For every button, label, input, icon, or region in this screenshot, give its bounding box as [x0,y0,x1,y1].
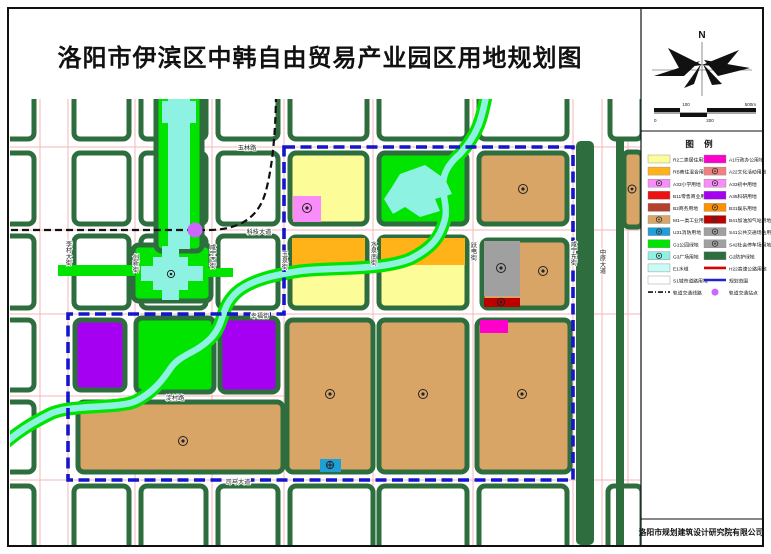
publisher-name: 洛阳市规划建筑设计研究院有限公司 [639,527,764,537]
legend-item: B2商务用地 [648,203,698,212]
legend-symbol-dot [714,170,716,172]
legend-label: A33初中用地 [729,181,757,188]
block-A35-research [75,320,125,390]
legend-item: 规划范围 [704,278,748,285]
legend-label: RB商住混合用地 [673,169,709,176]
legend-item: S41公共交通场站用地 [704,228,771,237]
planning-map-page: 洛阳市伊滨区中韩自由贸易产业园区用地规划图 [0,0,771,554]
legend-symbol-dot [714,231,716,233]
road-label: 咸宁西街 [209,243,216,270]
legend-symbol-dot [714,207,716,209]
legend-swatch [648,155,670,163]
block-M1-industrial [379,320,467,472]
legend-label: U31消防用地 [673,229,701,236]
road-label: 跃电街 [470,241,477,261]
legend-label: S1城市道路用地 [673,278,708,285]
legend-symbol-dot [658,231,660,233]
legend-label: G3广场用地 [673,253,699,260]
legend-item: A33小学用地 [648,179,701,188]
legend-symbol-dot [714,182,716,184]
north-label: N [698,30,705,41]
scale-bar: 0 100 200 500m [654,102,756,123]
road-label: 玉泉街 [281,251,288,271]
legend-label: A35科研用地 [729,193,757,200]
legend-swatch [648,264,670,272]
legend-label: H22高速公路用地 [729,266,767,273]
legend-swatch [704,191,726,199]
legend-item: A1行政办公用地 [704,155,764,164]
legend-title: 图 例 [685,139,716,149]
legend-item: A35科研用地 [704,191,757,200]
legend-dot-swatch [712,289,719,296]
road-label: 司马大道 [226,478,251,486]
block-M1-industrial [477,320,570,472]
legend-symbol-dot [658,255,660,257]
road-label: 中原大道 [599,248,606,275]
legend-label: M1一类工业用地 [673,217,709,224]
scale-200: 200 [706,118,714,123]
road-label: 水泉南街 [370,240,377,267]
legend-swatch [704,155,726,163]
legend-label: S42社会停车场用地 [729,241,771,248]
legend-label: 轨道交通线路 [673,290,702,297]
legend-label: A33小学用地 [673,181,701,188]
scale-500m: 500m [745,102,757,107]
road-label: 科技大道 [247,228,272,236]
legend-label: R2二类居住用地 [673,157,708,164]
legend-item: B31娱乐用地 [704,203,757,212]
road-label: 玉林路 [238,144,257,152]
legend-item: S42社会停车场用地 [704,240,771,249]
legend-swatch [704,252,726,260]
legend-item: G2防护绿地 [704,252,755,261]
legend-symbol-dot [658,182,660,184]
legend-item: B11零售商业用地 [648,191,710,200]
page-title: 洛阳市伊滨区中韩自由贸易产业园区用地规划图 [58,44,583,72]
legend-swatch [648,203,670,211]
legend-label: S41公共交通场站用地 [729,229,771,236]
legend-label: G1公园绿地 [673,241,699,248]
legend-label: 规划范围 [729,278,748,285]
legend-item: A22文化活动用地 [704,167,767,176]
road-label: 幸福街 [251,312,270,320]
canal-north-basin [162,101,196,123]
legend-item: 轨道交通线路 [648,290,702,297]
rail-transit-station [188,223,203,238]
legend-swatch [648,191,670,199]
legend-item: RB商住混合用地 [648,167,709,176]
scale-100: 100 [682,102,690,107]
legend-symbol-dot [714,243,716,245]
legend-item: R2二类居住用地 [648,155,708,164]
scale-0: 0 [654,118,657,123]
legend-label: A1行政办公用地 [729,157,764,164]
legend-rows: R2二类居住用地A1行政办公用地RB商住混合用地A22文化活动用地A33小学用地… [648,155,771,297]
legend-label: A22文化活动用地 [729,169,767,176]
legend-label: B2商务用地 [673,205,698,212]
legend-label: G2防护绿地 [729,253,755,260]
legend-swatch [648,167,670,175]
parcel-A1-admin-office [480,320,508,333]
legend-swatch [648,240,670,248]
page-svg: 洛阳市伊滨区中韩自由贸易产业园区用地规划图 [0,0,771,554]
road-label: 咸宁东街 [570,240,577,267]
legend-item: G3广场用地 [648,252,699,261]
legend-item: H22高速公路用地 [704,266,767,273]
green-band-west-of-avenue [576,141,594,545]
block-M1-industrial [287,320,373,472]
road-label: 李村大街 [65,240,72,267]
legend-label: B31娱乐用地 [729,205,757,212]
legend-item: S1城市道路用地 [648,276,708,285]
map-area: 玉林路科技大道幸福街淀村路司马大道李村大街创新街咸宁西街玉泉街水泉南街跃电街咸宁… [0,89,650,554]
legend-swatch [648,276,670,284]
legend-label: 轨道交通站点 [729,290,758,297]
legend-item: B41加油加气站用地 [704,216,771,225]
legend-item: E1水域 [648,264,689,273]
legend-item: 轨道交通站点 [712,289,758,297]
green-strip-plaza-east [207,268,233,277]
road-label: 淀村路 [166,394,185,402]
compass-rose: N [652,30,752,96]
legend-label: B41加油加气站用地 [729,217,771,224]
block-A35-research [220,318,278,392]
green-strip-west [58,265,135,276]
legend-label: E1水域 [673,266,689,273]
legend-item: M1一类工业用地 [648,216,709,225]
road-label: 创新街 [132,253,139,273]
legend-item: G1公园绿地 [648,240,699,249]
right-panel: N 0 100 200 500m 图 例 R2二类居住用地A [639,30,771,537]
symbol-fire-station [326,461,333,468]
legend-item: U31消防用地 [648,228,701,237]
legend-symbol-dot [658,219,660,221]
legend-item: A33初中用地 [704,179,757,188]
legend-symbol-dot [714,219,716,221]
